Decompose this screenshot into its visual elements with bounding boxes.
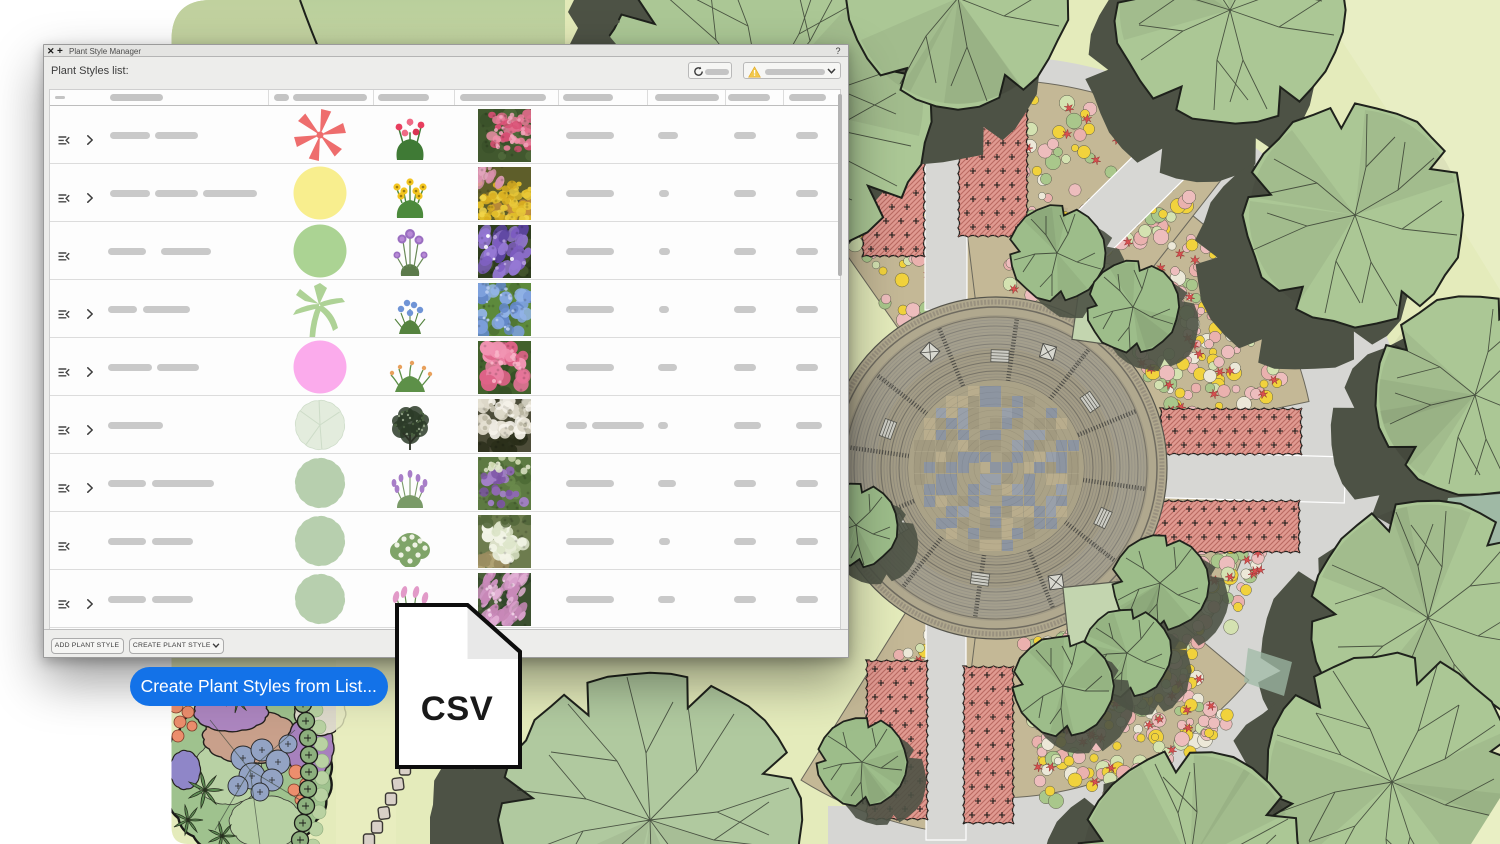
- svg-text:CSV: CSV: [420, 690, 492, 728]
